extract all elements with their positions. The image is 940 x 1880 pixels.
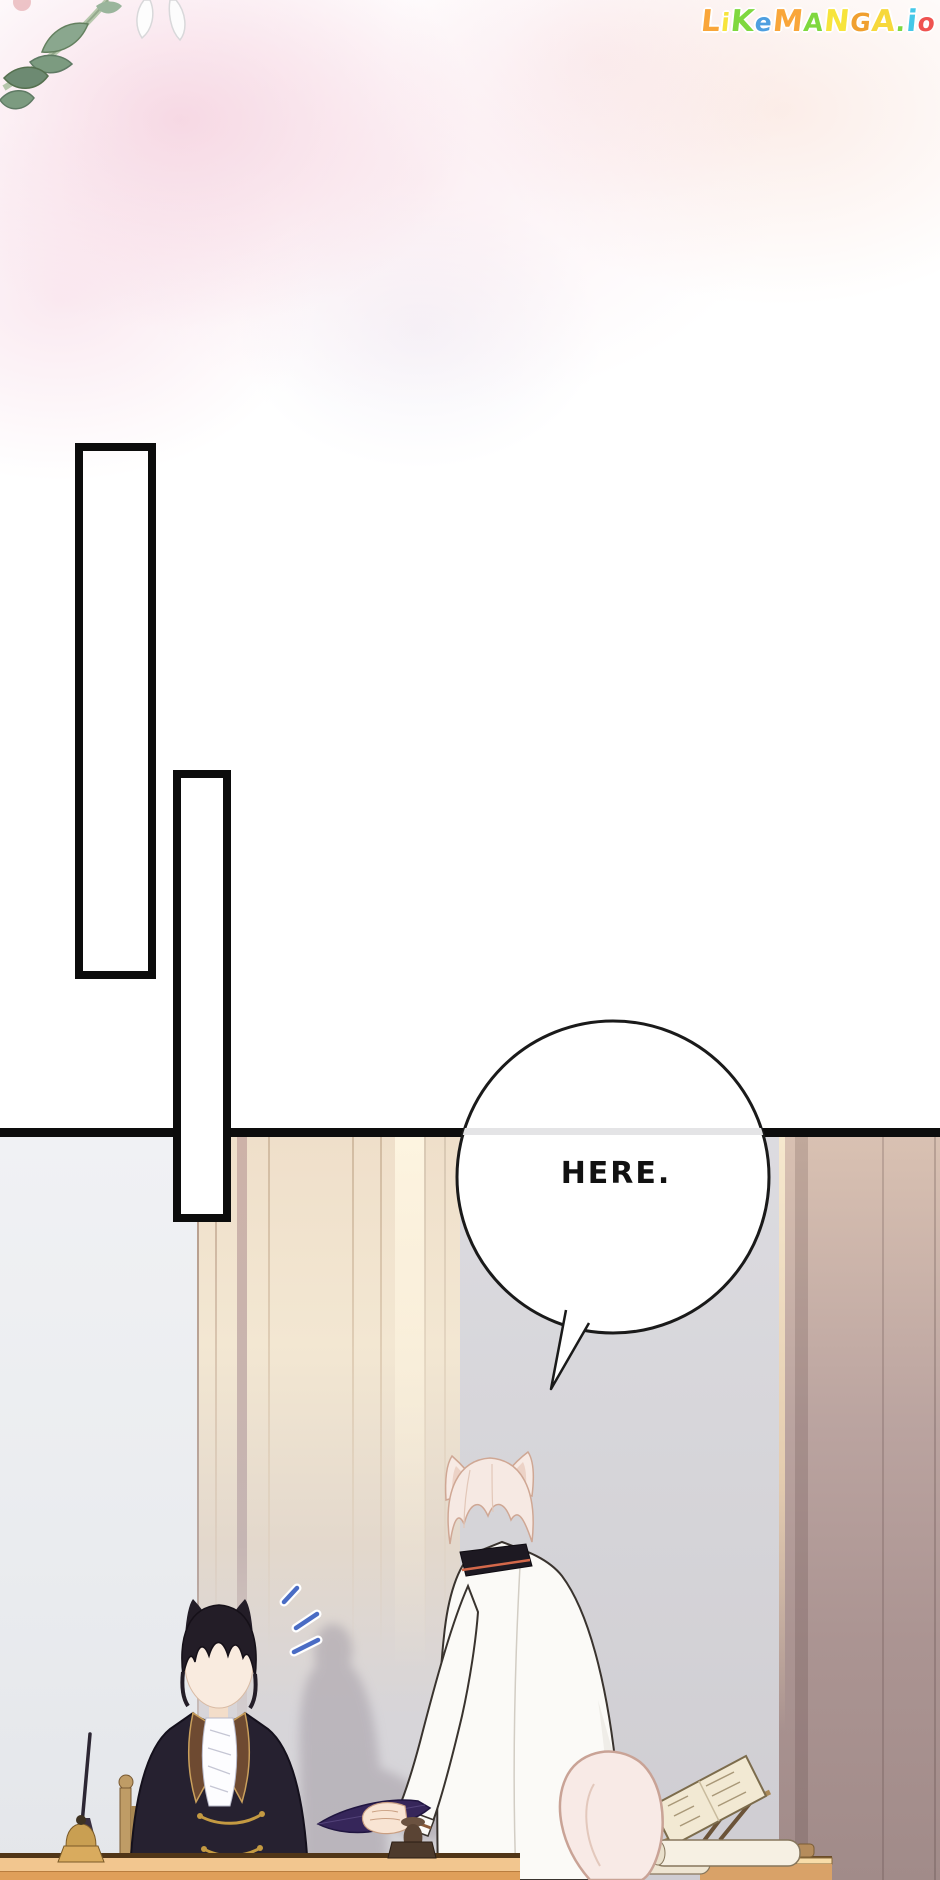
speech-bubble: HERE.	[450, 1021, 776, 1389]
decor-rectangle-tall	[75, 443, 156, 979]
bubble-text: HERE.	[561, 1156, 672, 1191]
hand	[363, 1803, 408, 1834]
decor-rectangle-narrow	[173, 770, 231, 1222]
pen	[82, 1734, 90, 1824]
white-jabot	[202, 1718, 237, 1806]
surprise-marks	[284, 1588, 318, 1652]
seated-cat-eared-man	[130, 1599, 308, 1871]
cat-tail	[560, 1752, 663, 1880]
manga-page: LiKeMANGA.io	[0, 0, 940, 1880]
panel-line-through-bubble	[450, 1128, 776, 1135]
inkwell	[58, 1734, 104, 1862]
